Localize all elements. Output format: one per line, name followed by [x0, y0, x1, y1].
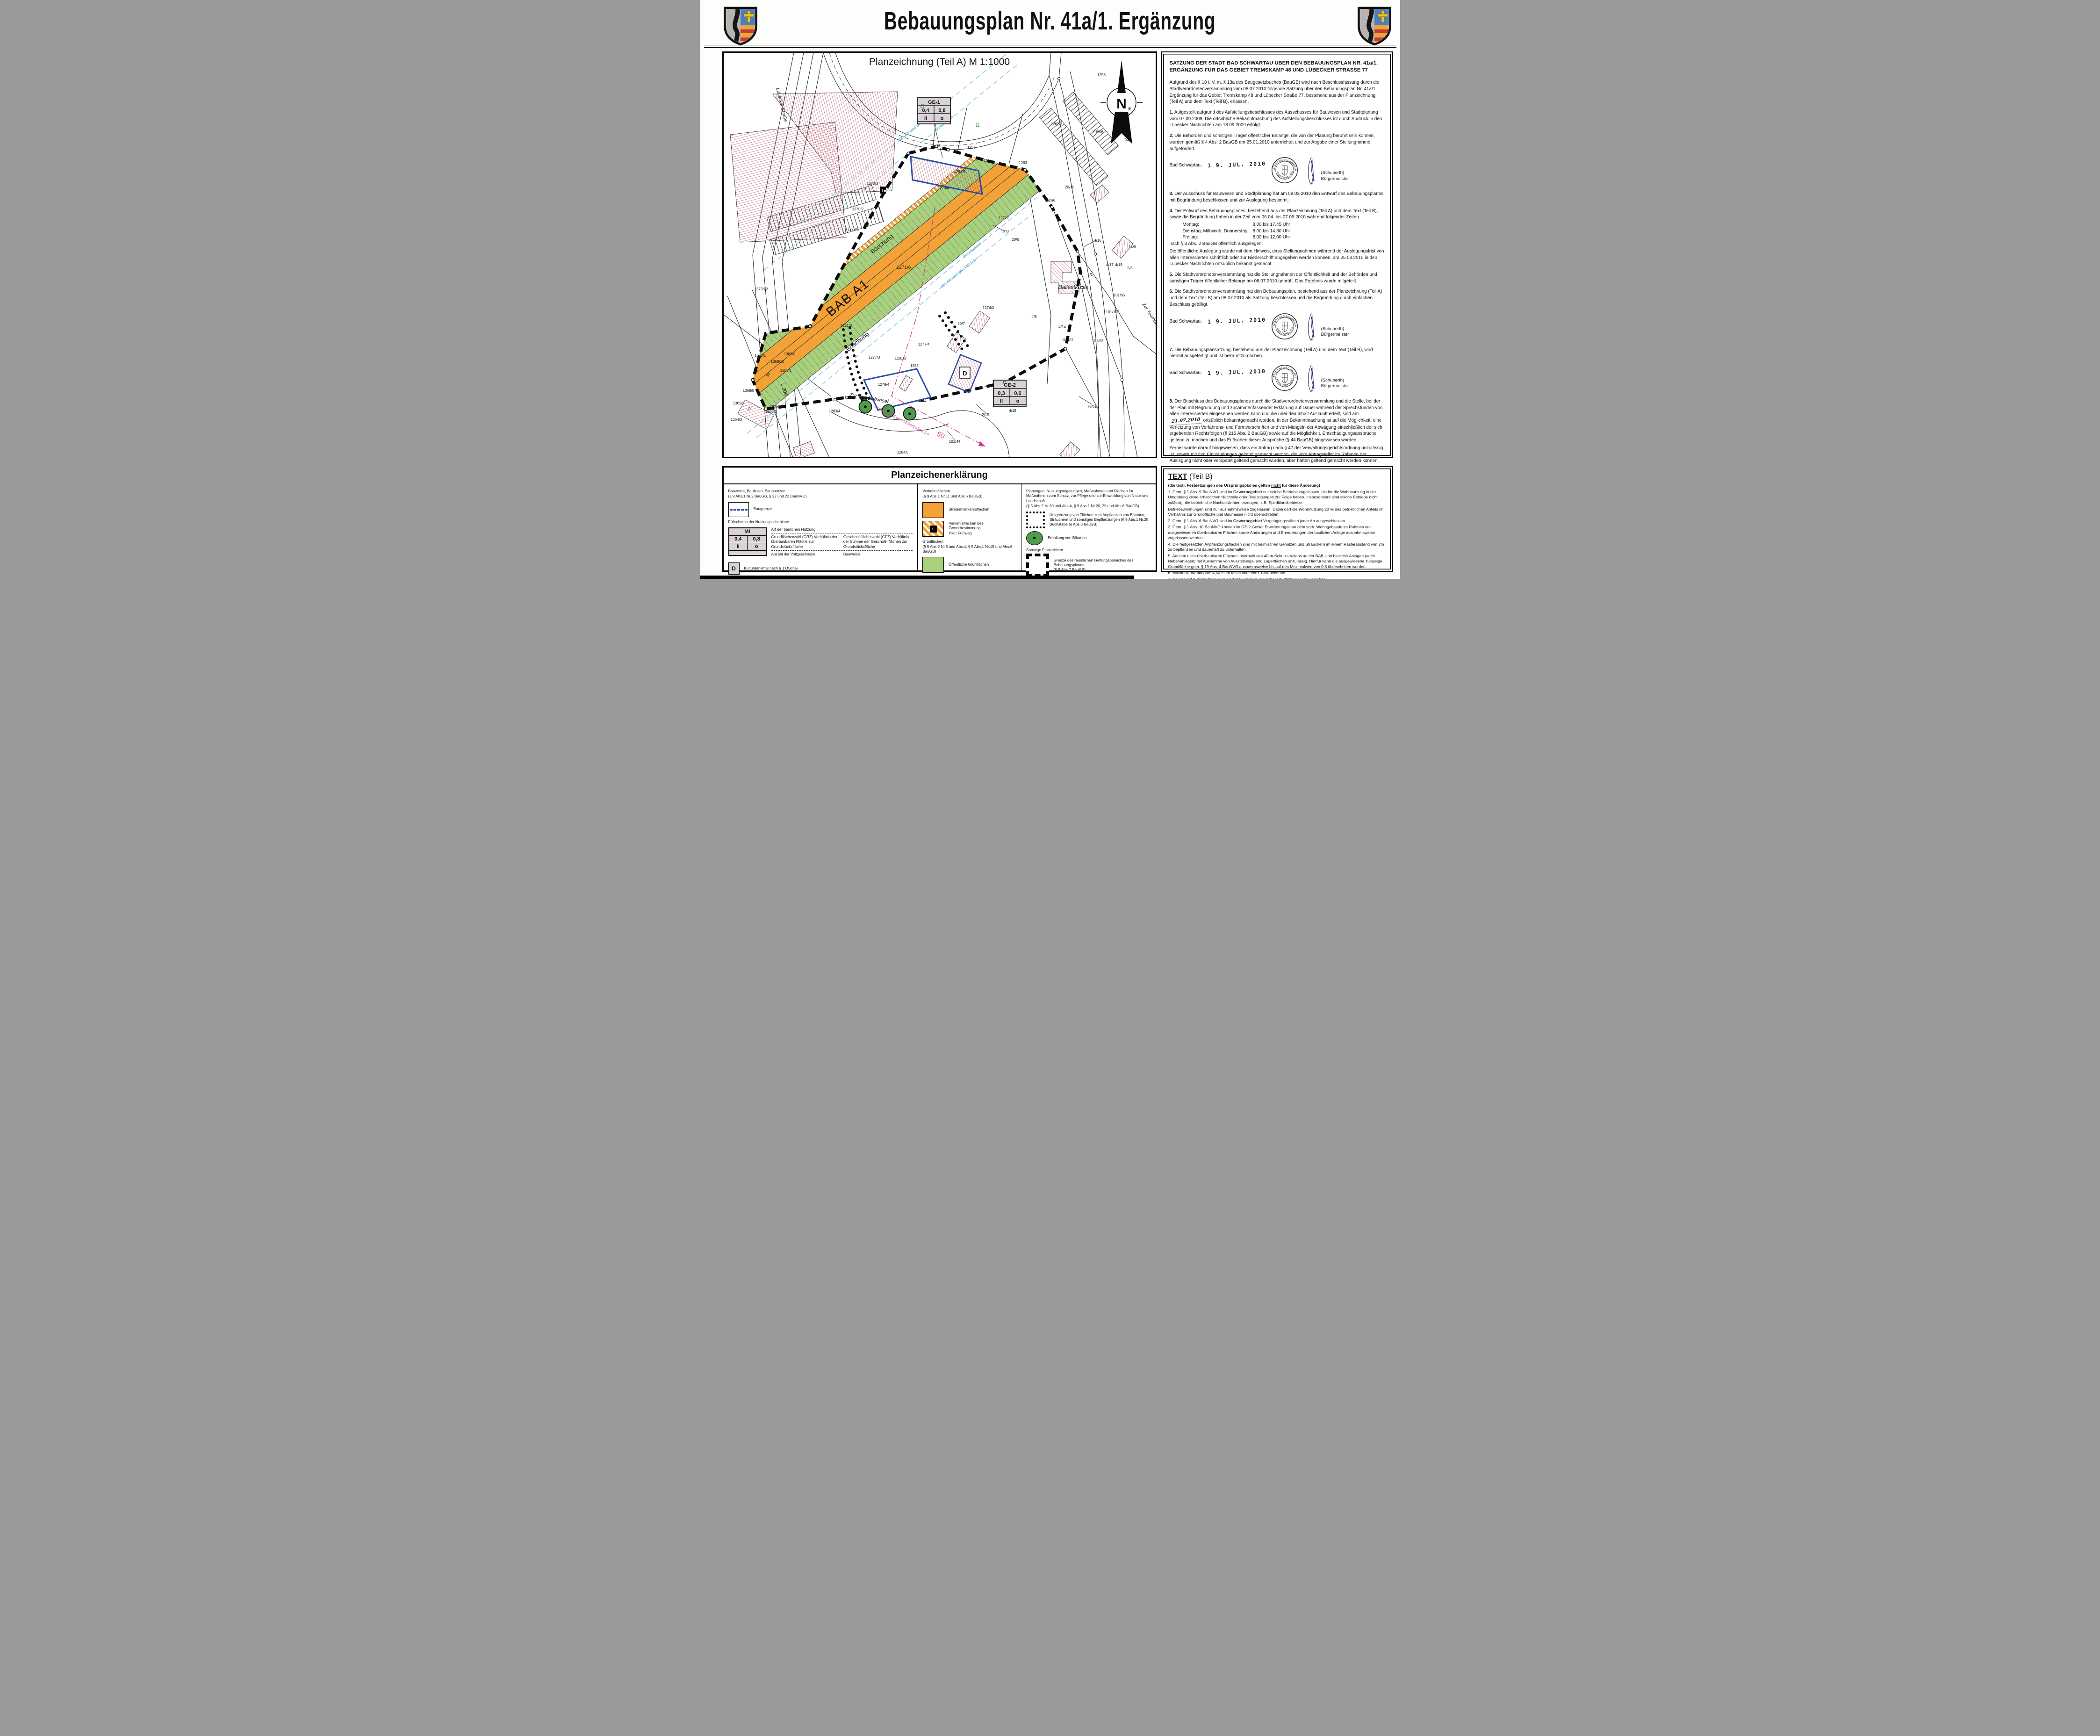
parcel-label: 20/7 [957, 322, 965, 326]
parcel-label: 4/17 [1106, 263, 1114, 267]
legend-subheading: (§ 5 Abs.2 Nr.5 und Abs.4, § 9 Abs.1 Nr.… [922, 545, 1016, 555]
legend-label: Baugrenze [754, 507, 772, 511]
satzung-paragraph-8: 8. Der Beschluss des Bebauungsplanes dur… [1170, 398, 1385, 444]
signature [1303, 156, 1319, 186]
legend-heading: Grünflächen [922, 540, 1016, 544]
satzung-paragraph-6: 6. Die Stadtverordnetenversammlung hat d… [1170, 288, 1385, 308]
parcel-label: 1368/1 [780, 368, 791, 373]
parcel-label: 1365/1 [765, 410, 777, 414]
legend-sublabel: (§ 9 Abs.7 BauGB) [1054, 568, 1086, 572]
scanned-plan-sheet: Bebauungsplan Nr. 41a/1. Ergänzung Planz… [700, 0, 1400, 579]
scan-artifact [700, 576, 1134, 579]
handwritten-date: 21.07.2010 [1169, 417, 1202, 426]
signature-block-3: Bad Schwartau,1 9. JUL. 2010 (Schuberth)… [1170, 364, 1385, 395]
legend-label: Erhaltung von Bäumen [1048, 536, 1086, 540]
signature [1303, 364, 1319, 394]
text-teil-b-panel: TEXT (Teil B) (die textl. Festsetzungen … [1161, 466, 1393, 572]
signature [1303, 312, 1319, 342]
geltungsbereich-symbol [1026, 554, 1049, 577]
legend-subheading: (§ 9 Abs.1 Nr.11 und Abs.6 BauGB) [922, 494, 1016, 499]
page-title: Bebauungsplan Nr. 41a/1. Ergänzung [700, 7, 1400, 36]
legend-subheading: (§ 5 Abs.2 Nr.10 und Abs.4, § 9 Abs.1 Nr… [1026, 504, 1151, 509]
legend-heading: Sonstige Planzeichen [1026, 548, 1151, 553]
parcel-label: 4/19 [1009, 409, 1016, 413]
satzung-paragraph-4: 4. Der Entwurf des Bebauungsplanes, best… [1170, 208, 1385, 221]
strassenverkehr-symbol [922, 502, 944, 518]
parcel-label: 1368/2 [769, 404, 780, 409]
parcel-label: 2/15 [982, 413, 989, 417]
legend-heading: Füllschema der Nutzungsschablone [728, 520, 913, 525]
satzung-paragraph-4b: nach § 3 Abs. 2 BauGB öffentlich ausgele… [1170, 241, 1385, 247]
svg-text:0,6: 0,6 [1014, 391, 1021, 396]
parcel-label: 20/6 [1012, 238, 1019, 242]
parcel-label: 1270/1 [847, 227, 859, 231]
satzung-paragraph-3: 3. Der Ausschuss für Bauwesen und Stadtp… [1170, 191, 1385, 203]
legend-label: Hier: Fußweg [949, 531, 971, 535]
schablone-annotation: Art der baulichen Nutzung Grundflächenza… [771, 527, 913, 560]
parcel-label: 101/105 [1106, 310, 1119, 314]
official-seal [1271, 156, 1299, 184]
textb-item-1: 1. Gem. § 1 Abs. 9 BauNVO sind im Gewerb… [1168, 490, 1387, 506]
parcel-label: 1279/4 [877, 382, 889, 387]
map-title: Planzeichnung (Teil A) M 1:1000 [724, 57, 1156, 68]
svg-text:o: o [1016, 399, 1019, 404]
parcel-label: 1283/4 [828, 409, 840, 413]
fussweg-symbol: t. [922, 521, 944, 537]
parcel-label: 1271/6 [896, 265, 911, 270]
satzung-paragraph-5: 5. Die Stadtverordnetenversammlung hat d… [1170, 272, 1385, 284]
baugrenze-symbol [728, 502, 749, 517]
parcel-label: 1364/3 [730, 418, 742, 422]
gruenflaeche-symbol [922, 557, 944, 573]
svg-text:II: II [1000, 399, 1002, 404]
satzung-heading: SATZUNG DER STADT BAD SCHWARTAU ÜBER DEN… [1170, 60, 1385, 74]
legend-label: Grenze des räumlichen Geltungsbereiches … [1054, 558, 1134, 567]
parcel-label: 1368/5 [742, 389, 754, 393]
textb-item-4: 4. Die festgesetzten Anpflanzungsflächen… [1168, 542, 1387, 553]
parcel-label: 1271/1 [998, 216, 1010, 220]
textb-item-7: 7. Räume mit Aufenhaltsräumen sind mit F… [1168, 577, 1387, 579]
svg-text:GE-1: GE-1 [928, 100, 940, 105]
parcel-label: 1263 [1019, 161, 1027, 165]
parcel-label: 1373/12 [754, 287, 768, 291]
place-label: Bad Schwartau, [1170, 163, 1202, 168]
legend-column-2: Verkehrsflächen (§ 9 Abs.1 Nr.11 und Abs… [918, 484, 1021, 572]
parcel-label: 101/95 [1113, 293, 1125, 297]
parcel-label: 4/1 [1087, 273, 1093, 277]
parcel-label: 1370/1 [754, 353, 766, 358]
plan-map: 40m-Abstand gem FStrG § 9 30m Abstand 30… [724, 53, 1157, 458]
date-stamp: 1 9. JUL. 2010 [1207, 367, 1266, 377]
parcel-label: 5/3 [1127, 266, 1133, 270]
official-seal [1271, 364, 1299, 392]
parcel-label: 1267 [967, 145, 976, 150]
parcel-label: 1365/2 [733, 401, 744, 405]
legend-column-3: Planungen, Nutzungsregelungen, Maßnahmen… [1021, 484, 1155, 572]
textb-item-6: 6. Maximale Wandhöhe: 4,50 m im Mittel ü… [1168, 570, 1387, 576]
parcel-label: 4/14 [1058, 325, 1066, 329]
parcel-label: 101/93 [1092, 339, 1103, 343]
north-letter: N [1116, 96, 1127, 112]
opening-hours: Montag:8.00 bis 17.45 Uhr Dienstag, Mitt… [1183, 222, 1385, 241]
parcel-label: 101/87 [1062, 338, 1073, 342]
signer-name: (Schuberth) [1321, 326, 1349, 332]
place-label: Bad Schwartau, [1170, 370, 1202, 375]
satzung-paragraph-4c: Die öffentliche Auslegung wurde mit dem … [1170, 248, 1385, 267]
textb-item-3: 3. Gem. § 1 Abs. 10 BauNVO können im GE-… [1168, 525, 1387, 541]
nutzungsschablone-symbol: MI 0,40,8 IIo [728, 527, 767, 556]
parcel-label: 14/8 [1129, 245, 1136, 249]
legend-heading: Planungen, Nutzungsregelungen, Maßnahmen… [1026, 489, 1151, 504]
parcel-label: 1281/3 [894, 356, 906, 360]
denkmal-symbol: D [728, 562, 740, 575]
date-stamp: 1 9. JUL. 2010 [1207, 160, 1266, 169]
textb-item-2: 2. Gem. § 1 Abs. 6 BauNVO sind im Gewerb… [1168, 519, 1387, 524]
parcel-label: 1189/6 [1092, 130, 1103, 134]
parcel-label: 1282 [910, 364, 919, 368]
plan-drawing-panel: Planzeichnung (Teil A) M 1:1000 [722, 51, 1157, 458]
parcel-label: 4/9 [1031, 315, 1037, 319]
parcel-label: 1262/3 [1050, 122, 1062, 126]
signer-name: (Schuberth) [1321, 170, 1349, 176]
satzung-paragraph-7: 7. Die Bebauungsplansatzung, bestehend a… [1170, 347, 1385, 360]
textb-item-1b: Betriebswohnungen sind nur ausnahmsweise… [1168, 507, 1387, 518]
signer-name: (Schuberth) [1321, 378, 1349, 383]
satzung-paragraph-8b: Ferner wurde darauf hingewiesen, dass ei… [1170, 445, 1385, 464]
legend-heading: Bauweise, Baulinien, Baugrenzen [728, 489, 913, 494]
parcel-label: 20/10 [1064, 185, 1074, 189]
satzung-panel: SATZUNG DER STADT BAD SCHWARTAU ÜBER DEN… [1161, 51, 1393, 458]
anpflanzung-symbol [1026, 511, 1045, 528]
svg-text:II: II [924, 116, 927, 122]
legend-label: Öffentliche Grünflächen [949, 562, 989, 567]
legend-title: Planzeichenerklärung [724, 468, 1156, 484]
parcel-label: 1368/10 [770, 360, 784, 364]
textb-note: (die textl. Festsetzungen des Ursprungsp… [1168, 483, 1387, 489]
textb-title: TEXT (Teil B) [1168, 472, 1387, 482]
satzung-intro: Aufgrund des § 10 i. V. m. § 13a des Bau… [1170, 79, 1385, 105]
parcel-label: 78/61 [1087, 404, 1097, 409]
area-label-ballastkuhle: Ballastkuhle [1058, 284, 1088, 290]
signature-block-1: Bad Schwartau,1 9. JUL. 2010 (Schuberth)… [1170, 156, 1385, 187]
place-label: Bad Schwartau, [1170, 319, 1202, 324]
parcel-label: 1258 [1097, 73, 1106, 77]
satzung-paragraph-2: 2. Die Behörden und sonstigen Träger öff… [1170, 133, 1385, 152]
textb-item-5: 5. Auf den nicht-überbaubaren Flächen in… [1168, 554, 1387, 570]
official-seal [1271, 312, 1299, 340]
legend-panel: Planzeichenerklärung Bauweise, Baulinien… [722, 466, 1157, 572]
signer-role: Bürgermeister [1321, 176, 1349, 182]
svg-text:o: o [940, 116, 943, 122]
parcel-label: 4/16 [1094, 238, 1101, 243]
monument-letter: D [963, 370, 967, 377]
vegetation-symbol: Ω [975, 122, 979, 128]
parcel-label: 1270/4 [937, 186, 949, 190]
svg-text:0,3: 0,3 [998, 391, 1005, 396]
parcel-label: 1368/9 [784, 352, 795, 356]
parcel-label: 1270/3 [866, 181, 878, 186]
parcel-label: 1274/3 [982, 306, 994, 310]
header-divider [704, 45, 1396, 48]
legend-column-1: Bauweise, Baulinien, Baugrenzen (§ 9 Abs… [724, 484, 918, 572]
date-stamp: 1 9. JUL. 2010 [1207, 316, 1266, 325]
parcel-label: 1277/3 [868, 355, 880, 360]
signer-role: Bürgermeister [1321, 383, 1349, 389]
legend-label: Straßenverkehrsflächen [949, 507, 989, 512]
satzung-paragraph-1: 1. Aufgestellt aufgrund des Aufstellungs… [1170, 109, 1385, 129]
parcel-label: 1277/4 [918, 342, 929, 346]
vegetation-symbol-2: Ω [920, 103, 924, 109]
parcel-label: 1271/3 [840, 324, 852, 328]
parcel-label: 101/44 [949, 439, 960, 444]
parcel-label: 1272 [1001, 230, 1009, 234]
legend-label: Verkehrsflächen bes. Zweckbestimmung [949, 521, 984, 530]
parcel-label: 1268/6 [954, 170, 965, 174]
parcel-label: 1266 [1047, 198, 1055, 202]
parcel-label: 1270/2 [852, 207, 863, 211]
parcel-label: 1284/5 [897, 450, 908, 454]
signature-block-2: Bad Schwartau,1 9. JUL. 2010 (Schuberth)… [1170, 312, 1385, 343]
legend-subheading: (§ 9 Abs.1 Nr.2 BauGB, § 22 und 23 BauNV… [728, 494, 913, 499]
legend-heading: Verkehrsflächen [922, 489, 1016, 494]
svg-text:0,8: 0,8 [938, 108, 945, 114]
baumerhaltung-symbol [1026, 531, 1043, 545]
parcel-label: 4/18 [1115, 263, 1122, 267]
legend-label: Kulturdenkmal nach § 1 DSchG [744, 566, 798, 571]
signer-role: Bürgermeister [1321, 332, 1349, 338]
